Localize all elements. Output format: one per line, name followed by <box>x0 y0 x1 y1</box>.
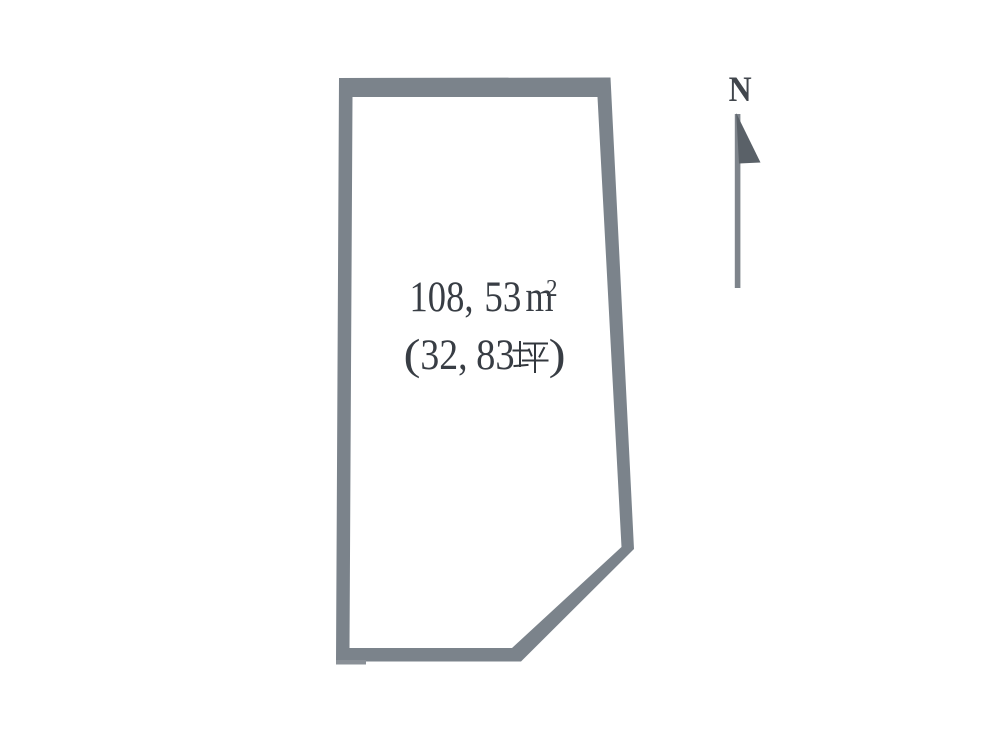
svg-text:83: 83 <box>476 332 514 379</box>
svg-text:108,: 108, <box>410 274 474 321</box>
svg-text:32,: 32, <box>420 332 467 379</box>
svg-text:53: 53 <box>484 274 521 321</box>
svg-text:(: ( <box>404 332 421 379</box>
svg-text:N: N <box>729 69 752 109</box>
svg-text:): ) <box>549 332 566 379</box>
svg-text:2: 2 <box>546 276 558 302</box>
